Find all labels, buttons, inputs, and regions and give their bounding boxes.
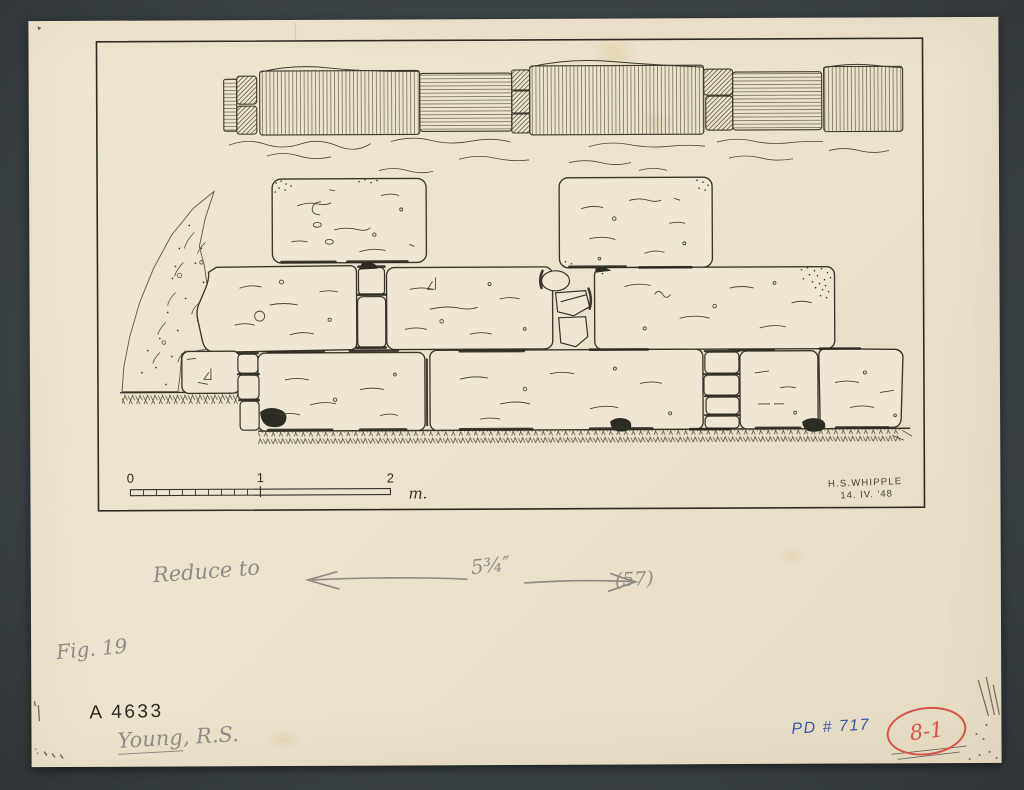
drawing-paper-sheet: 0 1 2 m. H.S.WHIPPLE 14. IV. '48 Reduce … <box>28 17 1001 767</box>
excavator-surname: Young <box>117 725 184 755</box>
scanned-drawing-page: { "figure": { "scale_bar": { "tick_0": "… <box>0 0 1024 790</box>
ashlar-block <box>740 351 818 429</box>
wavy-ground-lines <box>229 136 889 173</box>
ashlar-block <box>272 178 426 263</box>
ashlar-block <box>559 177 712 268</box>
scale-unit-label: m. <box>408 484 427 502</box>
ashlar-block <box>430 349 703 430</box>
reduce-arrow-left-icon <box>299 568 471 593</box>
plate-code-text: 8-1 <box>908 717 945 745</box>
scale-tick-label: 1 <box>257 470 264 485</box>
plan-view-band <box>224 59 903 136</box>
signature-date: 14. IV. '48 <box>840 488 893 501</box>
scale-tick-label: 2 <box>387 471 394 486</box>
wall-drawing-figure: 0 1 2 m. H.S.WHIPPLE 14. IV. '48 <box>28 17 1001 767</box>
ashlar-block <box>819 348 903 428</box>
reduce-measure-text: 5¾″ <box>470 551 512 579</box>
reduce-target-text: (57) <box>614 567 654 591</box>
artist-signature: H.S.WHIPPLE 14. IV. '48 <box>828 476 903 502</box>
ashlar-block <box>386 267 552 350</box>
accession-number-label: A 4633 <box>89 701 164 725</box>
excavator-initials: , R.S. <box>182 722 239 749</box>
scale-tick-label: 0 <box>127 471 134 486</box>
ashlar-block <box>197 266 357 353</box>
scale-bar: 0 1 2 m. <box>127 469 428 503</box>
